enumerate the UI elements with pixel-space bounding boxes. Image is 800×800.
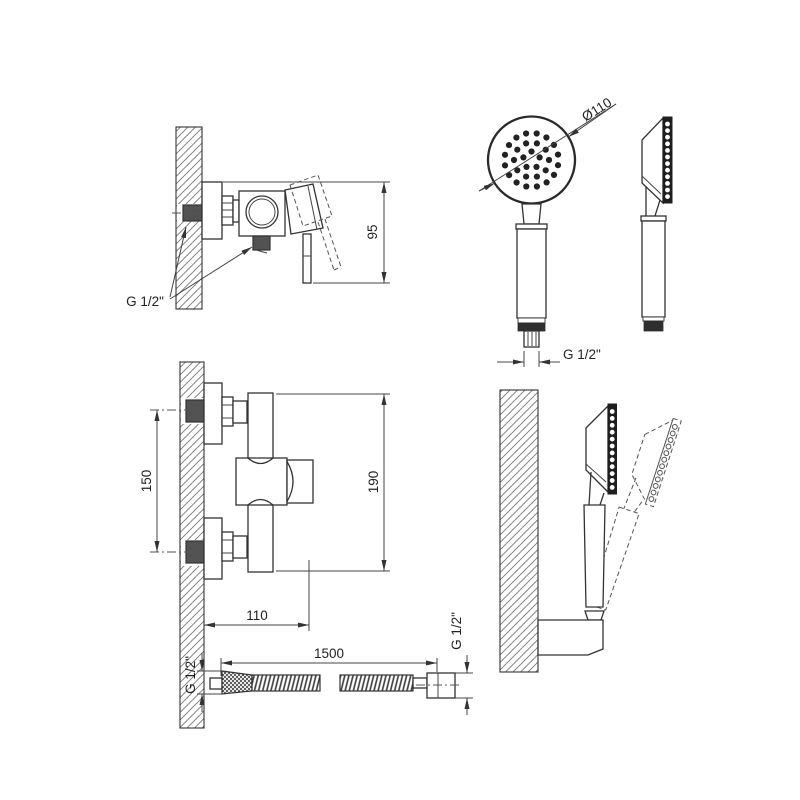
drawing-canvas: 95 G 1/2" Ø110 G 1/2" — [0, 0, 800, 800]
holder-view — [500, 390, 681, 672]
thread-label-handshower: G 1/2" — [563, 347, 601, 362]
dim-diameter-label: Ø110 — [579, 95, 614, 125]
handshower-side-view — [641, 117, 672, 331]
holder-cup — [585, 611, 604, 620]
technical-drawing: 95 G 1/2" Ø110 G 1/2" — [0, 0, 800, 800]
hose-nut-left — [210, 678, 222, 689]
handshower-handle-side — [642, 221, 665, 317]
supply-fitting-top — [186, 400, 204, 422]
cartridge-housing — [236, 458, 287, 505]
mixer-side-view: 95 G 1/2" — [126, 127, 390, 309]
dim-1500-label: 1500 — [314, 646, 344, 661]
handshower-front-view: Ø110 G 1/2" — [479, 95, 616, 367]
dim-110-label: 110 — [246, 608, 268, 623]
shower-head-face — [488, 117, 575, 204]
escutcheon-bottom — [204, 518, 222, 579]
escutcheon-top — [204, 383, 222, 444]
dim-95-label: 95 — [365, 224, 380, 239]
handshower-handle — [517, 229, 546, 318]
hose-segment-right — [340, 675, 413, 691]
hose-view: 1500 G 1/2" G 1/2" — [183, 612, 473, 715]
mixer-lever — [303, 234, 311, 283]
thread-label-hose-left: G 1/2" — [183, 656, 198, 694]
dim-150-label: 150 — [139, 470, 154, 493]
hose-cone-left — [222, 671, 252, 694]
mixer-knob — [287, 460, 313, 503]
mixer-handle — [285, 184, 323, 234]
escutcheon — [202, 182, 222, 239]
handshower-in-holder — [584, 505, 605, 607]
outlet-fitting — [253, 236, 270, 250]
thread-label-hose-right: G 1/2" — [449, 612, 464, 650]
wall-bracket — [538, 620, 603, 655]
dim-190-label: 190 — [366, 471, 381, 494]
hose-segment-left — [252, 675, 320, 691]
mixer-front-view: 150 190 110 — [139, 362, 390, 728]
wall-section-holder — [500, 390, 538, 672]
thread-label-side: G 1/2" — [126, 294, 164, 309]
